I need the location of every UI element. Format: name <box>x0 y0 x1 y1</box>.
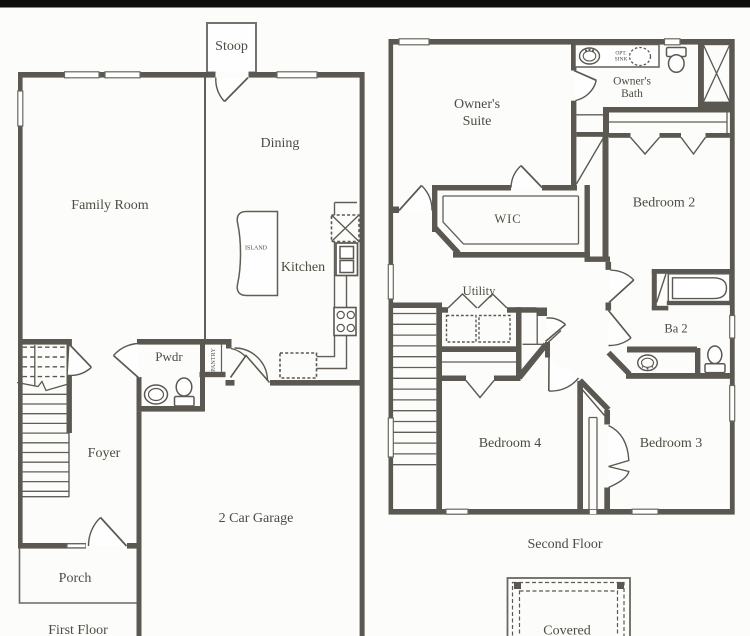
svg-text:Porch: Porch <box>59 571 92 586</box>
svg-text:WIC: WIC <box>494 212 521 226</box>
svg-text:Owner's: Owner's <box>613 76 651 88</box>
svg-text:Foyer: Foyer <box>88 446 121 461</box>
svg-text:Bedroom 3: Bedroom 3 <box>640 436 703 451</box>
svg-text:Bedroom 2: Bedroom 2 <box>633 196 696 211</box>
svg-text:First Floor: First Floor <box>48 623 108 636</box>
svg-text:Pwdr: Pwdr <box>155 349 183 364</box>
svg-text:Dining: Dining <box>261 136 300 151</box>
svg-text:PANTRY: PANTRY <box>210 348 217 372</box>
svg-text:SINK: SINK <box>615 57 628 63</box>
svg-text:Owner's: Owner's <box>454 97 500 112</box>
svg-text:Bedroom 4: Bedroom 4 <box>479 436 542 451</box>
svg-text:Stoop: Stoop <box>215 39 248 54</box>
svg-text:Family Room: Family Room <box>71 198 149 213</box>
svg-text:Ba 2: Ba 2 <box>664 322 687 336</box>
svg-text:Kitchen: Kitchen <box>281 260 325 275</box>
svg-text:Utility: Utility <box>463 284 496 298</box>
svg-text:Second Floor: Second Floor <box>527 537 602 552</box>
svg-text:ISLAND: ISLAND <box>245 246 268 252</box>
svg-text:Covered: Covered <box>543 624 590 636</box>
svg-text:Bath: Bath <box>621 88 643 100</box>
svg-text:Suite: Suite <box>463 114 492 129</box>
svg-text:2 Car Garage: 2 Car Garage <box>219 511 294 526</box>
